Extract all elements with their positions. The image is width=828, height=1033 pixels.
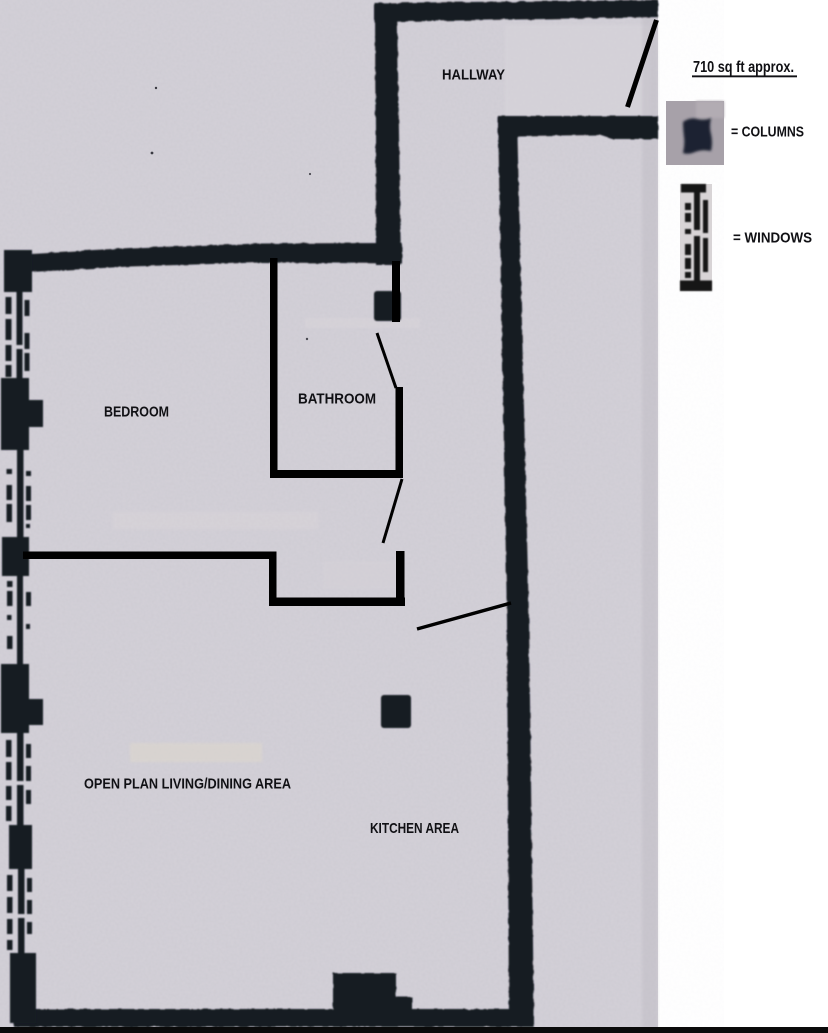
svg-text:= WINDOWS: = WINDOWS bbox=[733, 230, 812, 247]
svg-text:BEDROOM: BEDROOM bbox=[104, 404, 169, 421]
svg-text:HALLWAY: HALLWAY bbox=[442, 67, 505, 84]
svg-text:OPEN PLAN LIVING/DINING AREA: OPEN PLAN LIVING/DINING AREA bbox=[84, 776, 291, 793]
svg-text:BATHROOM: BATHROOM bbox=[298, 391, 376, 408]
svg-text:= COLUMNS: = COLUMNS bbox=[731, 124, 804, 141]
svg-text:710 sq ft approx.: 710 sq ft approx. bbox=[693, 59, 794, 76]
svg-text:KITCHEN AREA: KITCHEN AREA bbox=[370, 820, 459, 837]
